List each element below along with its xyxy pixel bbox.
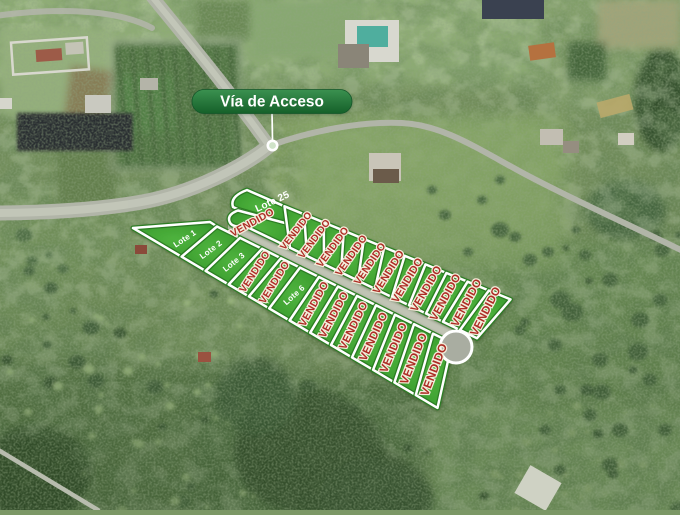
svg-text:Vía de Acceso: Vía de Acceso (220, 94, 324, 111)
